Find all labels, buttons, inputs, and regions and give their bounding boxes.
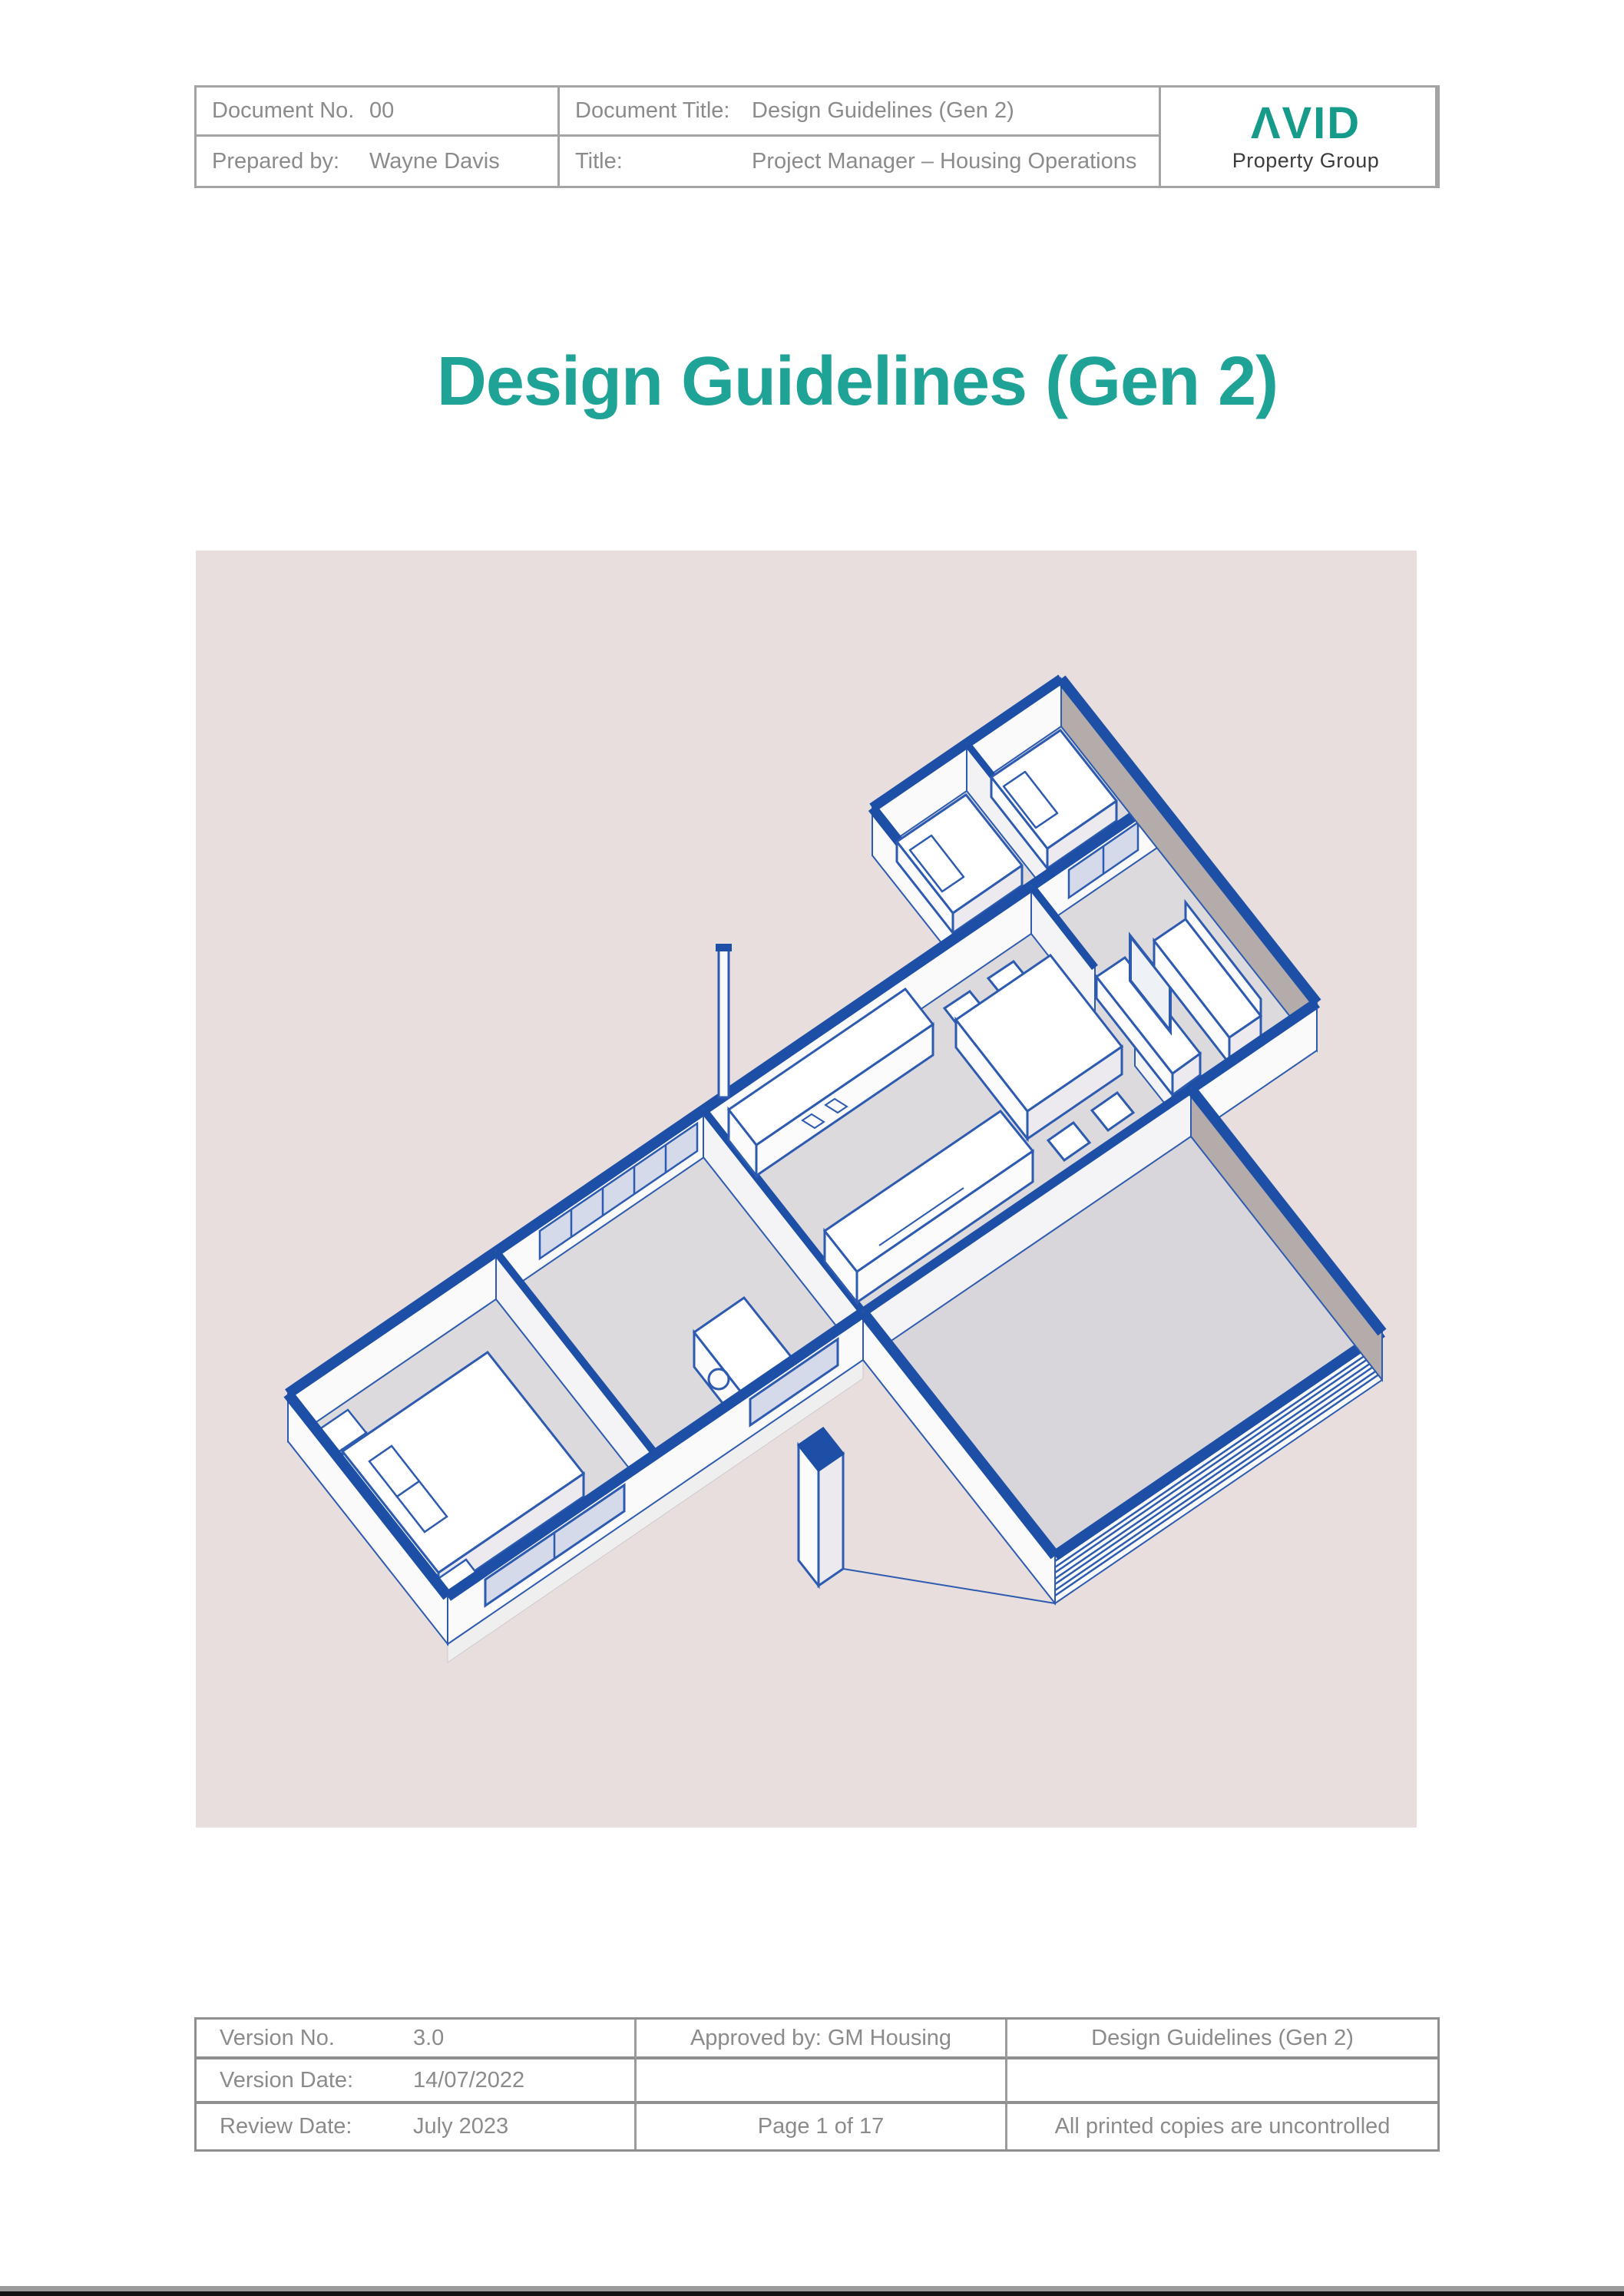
review-date-value: July 2023 — [413, 2114, 508, 2139]
page-number-cell: Page 1 of 17 — [637, 2104, 1007, 2149]
version-date-cell: Version Date: 14/07/2022 — [197, 2059, 637, 2104]
approved-by-text: Approved by: GM Housing — [690, 2026, 951, 2051]
avid-logo-wordmark: ΛVID — [1251, 101, 1361, 146]
version-no-value: 3.0 — [413, 2026, 444, 2051]
document-no-label: Document No. — [212, 98, 369, 124]
document-no-cell: Document No. 00 — [197, 88, 560, 137]
document-no-value: 00 — [369, 98, 394, 124]
prepared-by-value: Wayne Davis — [369, 149, 500, 174]
avid-logo-tagline: Property Group — [1232, 149, 1380, 173]
document-control-footer-table: Version No. 3.0 Approved by: GM Housing … — [194, 2017, 1440, 2152]
version-no-label: Version No. — [220, 2026, 413, 2051]
document-title-label: Document Title: — [575, 98, 752, 124]
page-title: Design Guidelines (Gen 2) — [0, 342, 1624, 422]
prepared-by-label: Prepared by: — [212, 149, 369, 174]
document-control-header-table: Document No. 00 Document Title: Design G… — [194, 85, 1440, 188]
uncontrolled-copies-text: All printed copies are uncontrolled — [1055, 2114, 1391, 2139]
document-title-cell: Document Title: Design Guidelines (Gen 2… — [560, 88, 1161, 137]
document-title-value: Design Guidelines (Gen 2) — [752, 98, 1014, 124]
footer-doc-title-cell: Design Guidelines (Gen 2) — [1007, 2020, 1437, 2059]
company-logo: ΛVID Property Group — [1161, 88, 1437, 186]
version-no-cell: Version No. 3.0 — [197, 2020, 637, 2059]
review-date-cell: Review Date: July 2023 — [197, 2104, 637, 2149]
uncontrolled-copies-cell: All printed copies are uncontrolled — [1007, 2104, 1437, 2149]
footer-empty-cell-2 — [1007, 2059, 1437, 2104]
review-date-label: Review Date: — [220, 2114, 413, 2139]
author-title-label: Title: — [575, 149, 752, 174]
footer-doc-title-text: Design Guidelines (Gen 2) — [1091, 2026, 1354, 2051]
version-date-label: Version Date: — [220, 2068, 413, 2093]
bottom-black-bar — [0, 2291, 1624, 2296]
bottom-gray-bar — [0, 2286, 1624, 2291]
page-number-text: Page 1 of 17 — [758, 2114, 884, 2139]
author-title-value: Project Manager – Housing Operations — [752, 149, 1136, 174]
version-date-value: 14/07/2022 — [413, 2068, 524, 2093]
prepared-by-cell: Prepared by: Wayne Davis — [197, 137, 560, 186]
floor-plan-image — [196, 551, 1417, 1828]
approved-by-cell: Approved by: GM Housing — [637, 2020, 1007, 2059]
footer-empty-cell-1 — [637, 2059, 1007, 2104]
author-title-cell: Title: Project Manager – Housing Operati… — [560, 137, 1161, 186]
